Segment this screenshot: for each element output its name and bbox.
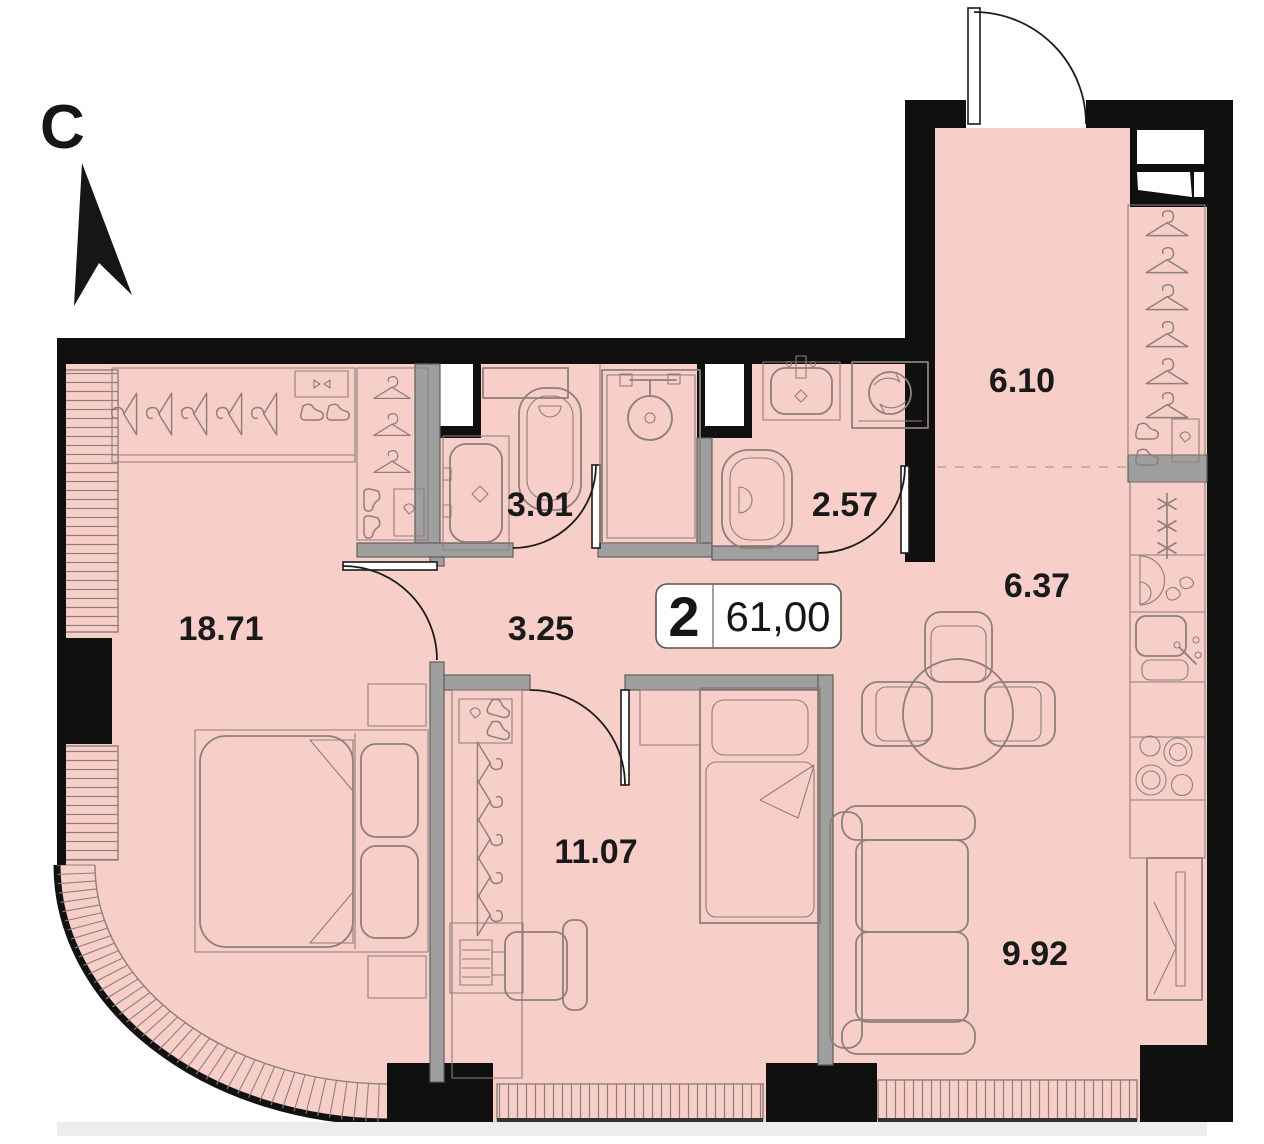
vent-shaft-2: [705, 364, 744, 426]
area-badge: 2 61,00: [656, 584, 841, 648]
window-bottom-living: [878, 1080, 1137, 1120]
floor-plan-page: 18.713.013.252.576.106.3711.079.92 2 61,…: [0, 0, 1264, 1144]
north-arrow: C: [40, 93, 132, 306]
room-area-label-bathroom-1: 3.01: [507, 486, 573, 524]
north-arrow-icon: [74, 163, 132, 306]
rooms-count-label: 2: [668, 585, 699, 648]
room-area-label-bedroom-2: 11.07: [554, 833, 637, 871]
room-area-label-hallway: 3.25: [508, 610, 574, 648]
window-left-lower: [62, 746, 118, 860]
page-shadow: [57, 1122, 1207, 1136]
window-bottom-bedroom2: [497, 1084, 763, 1120]
entrance-door-icon: [968, 8, 1086, 124]
floor-plan: 18.713.013.252.576.106.3711.079.92 2 61,…: [0, 0, 1264, 1144]
room-area-label-kitchen: 6.37: [1004, 567, 1070, 605]
north-label: C: [40, 93, 85, 162]
room-area-label-entry-hall: 6.10: [989, 362, 1055, 400]
total-area-label: 61,00: [725, 593, 830, 640]
window-left-upper: [62, 370, 118, 632]
room-area-label-living-area: 9.92: [1002, 935, 1068, 973]
shelf-icon: [483, 368, 568, 398]
vent-shaft-3: [1137, 130, 1204, 164]
room-area-label-bathroom-2: 2.57: [812, 486, 878, 524]
vent-shaft-5: [1194, 172, 1204, 197]
room-area-label-bedroom-main: 18.71: [178, 610, 263, 648]
